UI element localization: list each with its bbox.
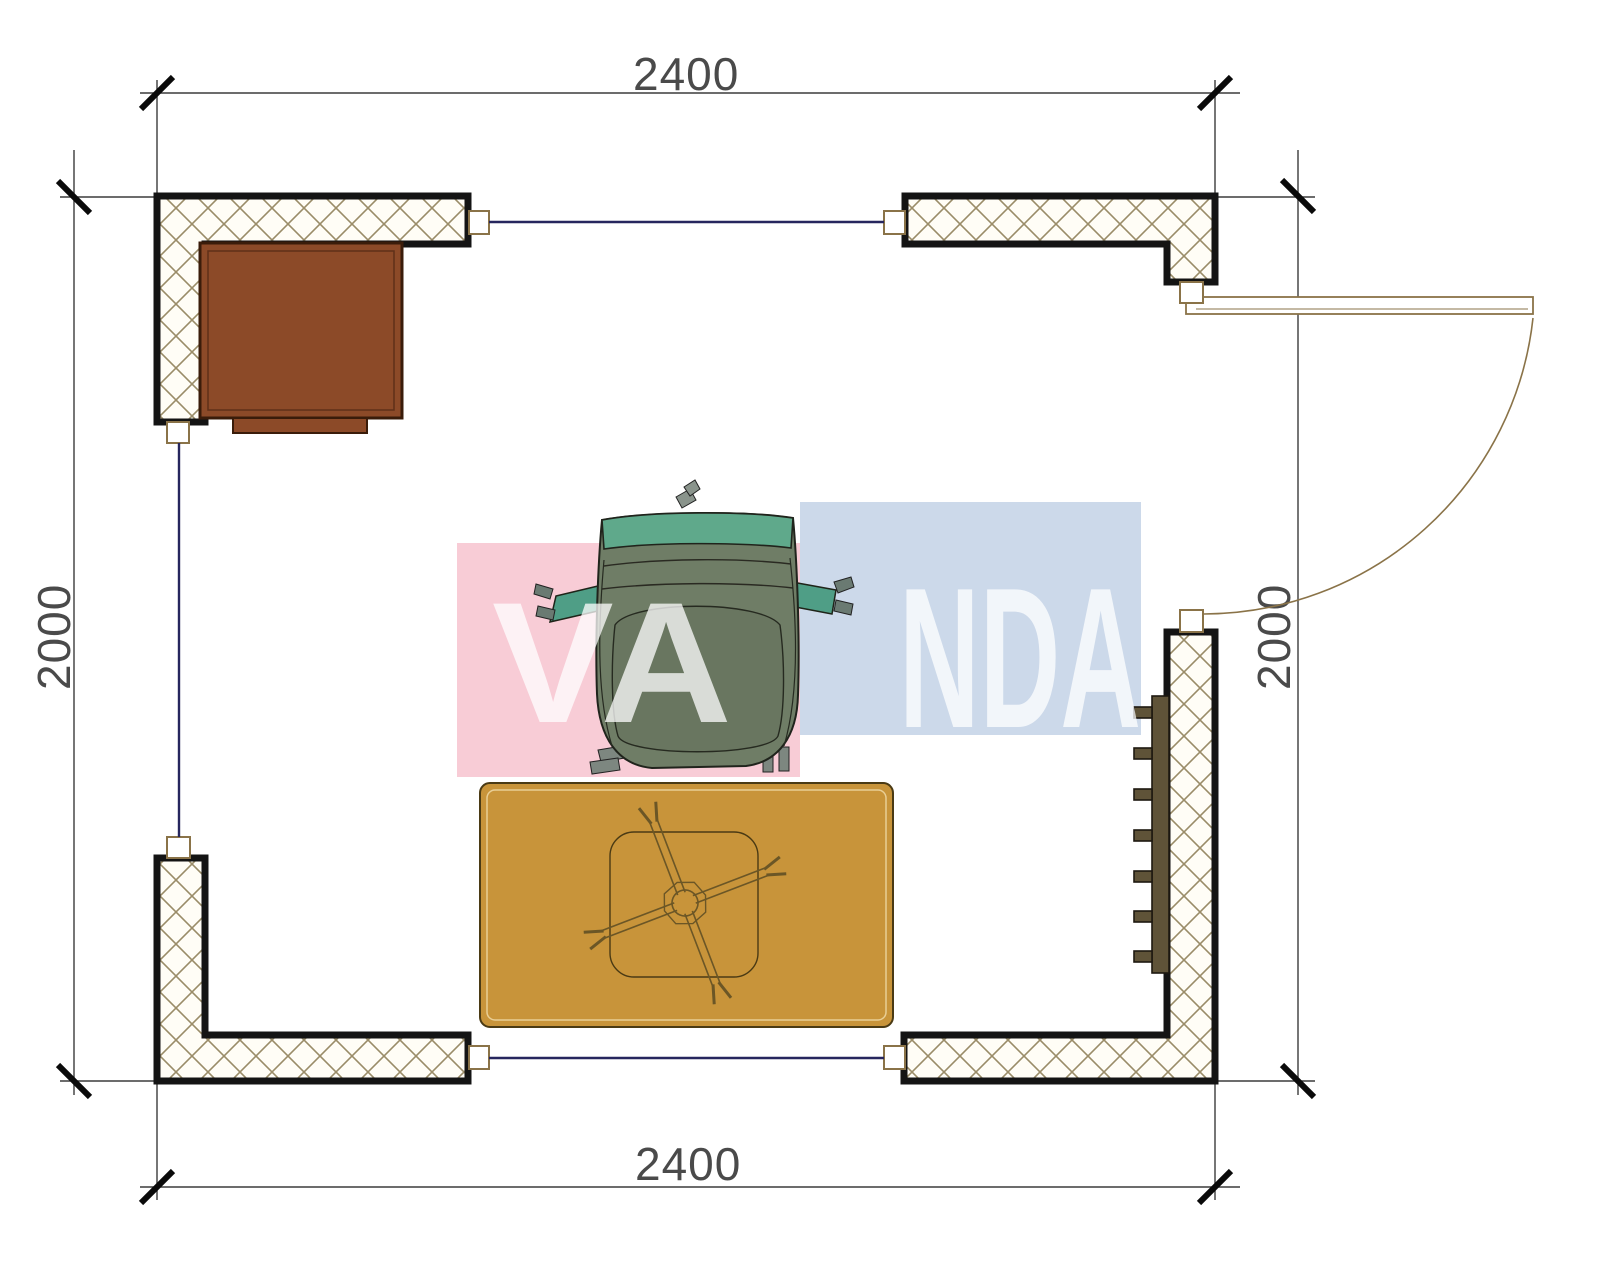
radiator-fin bbox=[1134, 789, 1152, 800]
cabinet-body bbox=[200, 243, 402, 418]
armchair-headrest bbox=[602, 513, 793, 549]
cabinet bbox=[200, 243, 402, 433]
dimension-label-right: 2000 bbox=[1248, 584, 1300, 690]
wall-post bbox=[884, 211, 905, 234]
dimension-label-bottom: 2400 bbox=[635, 1138, 741, 1190]
floor-plan-canvas: 2400 2400 2000 2000 bbox=[0, 0, 1600, 1280]
floor-plan-drawing: 2400 2400 2000 2000 bbox=[0, 0, 1600, 1280]
radiator-fin bbox=[1134, 951, 1152, 962]
wall-post bbox=[167, 422, 189, 443]
wall-top-right bbox=[905, 196, 1215, 282]
radiator-bar bbox=[1152, 696, 1169, 973]
door-frame-bottom bbox=[1180, 610, 1203, 632]
radiator-fin bbox=[1134, 911, 1152, 922]
dimension-label-left: 2000 bbox=[28, 584, 80, 690]
wall-post bbox=[469, 1046, 489, 1069]
rug-border bbox=[480, 783, 893, 1027]
dimension-label-top: 2400 bbox=[633, 48, 739, 100]
armchair-foot bbox=[779, 747, 789, 771]
watermark-text-left: VA bbox=[492, 567, 732, 759]
watermark-text-right: NDA bbox=[899, 547, 1141, 770]
wall-bottom-left bbox=[157, 858, 468, 1081]
cabinet-base bbox=[233, 418, 367, 433]
door-swing-arc bbox=[1204, 318, 1533, 614]
wall-post bbox=[167, 837, 190, 858]
radiator-fin bbox=[1134, 830, 1152, 841]
door-leaf bbox=[1186, 297, 1533, 314]
door bbox=[1180, 282, 1533, 632]
wall-post bbox=[884, 1046, 905, 1069]
radiator-fin bbox=[1134, 871, 1152, 882]
wall-post bbox=[469, 211, 489, 234]
door-frame-top bbox=[1180, 282, 1203, 303]
rug bbox=[480, 783, 893, 1027]
